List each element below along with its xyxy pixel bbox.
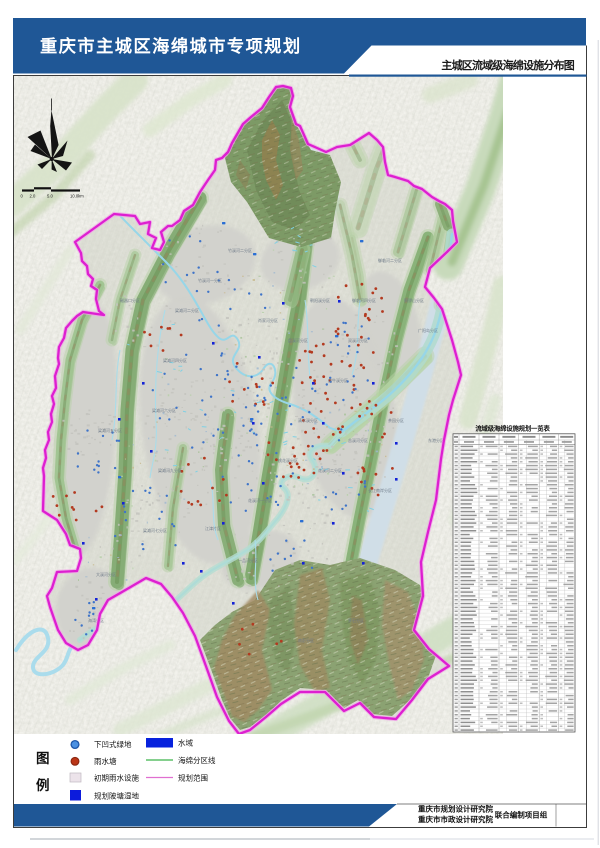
- svg-text:梁滩河六分区: 梁滩河六分区: [152, 407, 176, 413]
- svg-text:主城区流域级海绵设施分布图: 主城区流域级海绵设施分布图: [441, 58, 574, 72]
- svg-text:盘溪河分区: 盘溪河分区: [288, 337, 308, 343]
- svg-text:竹溪河一分区: 竹溪河一分区: [198, 277, 222, 283]
- svg-text:雨水塘: 雨水塘: [94, 756, 117, 766]
- svg-text:流域级海绵设施规划一览表: 流域级海绵设施规划一览表: [475, 424, 550, 433]
- svg-text:水域: 水域: [178, 738, 193, 748]
- svg-text:海绵分区线: 海绵分区线: [178, 755, 216, 765]
- svg-text:江津片区: 江津片区: [205, 525, 221, 531]
- svg-text:梁滩河五分区: 梁滩河五分区: [98, 427, 122, 433]
- svg-text:下凹式绿地: 下凹式绿地: [94, 739, 132, 749]
- svg-text:苦溪河分区: 苦溪河分区: [348, 437, 368, 443]
- svg-text:重庆市主城区海绵城市专项规划: 重庆市主城区海绵城市专项规划: [40, 36, 302, 56]
- svg-text:梁滩河九分区: 梁滩河九分区: [158, 467, 182, 473]
- svg-text:清水溪分区: 清水溪分区: [298, 417, 318, 423]
- svg-text:规划陂塘湿地: 规划陂塘湿地: [94, 791, 139, 801]
- svg-text:花溪河一分区: 花溪河一分区: [248, 497, 272, 503]
- svg-text:肖家河分区: 肖家河分区: [258, 317, 278, 323]
- svg-text:10.0km: 10.0km: [70, 194, 84, 199]
- svg-text:南彭分区: 南彭分区: [298, 637, 314, 643]
- svg-text:御临河四分区: 御临河四分区: [352, 297, 376, 303]
- svg-text:梁滩河四分区: 梁滩河四分区: [163, 357, 187, 363]
- svg-text:海湾分区: 海湾分区: [88, 617, 104, 623]
- svg-text:伏牛溪分区: 伏牛溪分区: [328, 377, 348, 383]
- svg-text:磁器口分区: 磁器口分区: [120, 297, 140, 303]
- svg-text:2.0: 2.0: [30, 194, 36, 199]
- svg-text:界石分区: 界石分区: [348, 617, 364, 623]
- svg-text:铜锣山分区: 铜锣山分区: [404, 297, 424, 303]
- svg-text:大溪河分区: 大溪河分区: [96, 571, 116, 577]
- svg-text:茶园分区: 茶园分区: [388, 417, 404, 423]
- svg-text:重庆市市政设计研究院: 重庆市市政设计研究院: [418, 814, 493, 824]
- svg-text:广阳岛分区: 广阳岛分区: [418, 327, 438, 333]
- svg-text:初期雨水设施: 初期雨水设施: [94, 773, 139, 783]
- svg-text:重庆市规划设计研究院: 重庆市规划设计研究院: [418, 804, 493, 814]
- svg-text:朝阳溪分区: 朝阳溪分区: [310, 297, 330, 303]
- svg-text:联合编制项目组: 联合编制项目组: [495, 810, 548, 820]
- svg-text:梁滩河七分区: 梁滩河七分区: [143, 527, 167, 533]
- svg-text:双溪河分区: 双溪河分区: [348, 337, 368, 343]
- svg-text:长江南岸分区: 长江南岸分区: [368, 487, 392, 493]
- svg-text:梁滩河二分区: 梁滩河二分区: [175, 307, 199, 313]
- svg-text:5.0: 5.0: [47, 194, 53, 199]
- svg-text:花溪河二分区: 花溪河二分区: [318, 467, 342, 473]
- svg-text:图: 图: [36, 751, 50, 766]
- svg-text:竹溪河二分区: 竹溪河二分区: [228, 247, 252, 253]
- svg-text:一品河分区: 一品河分区: [238, 557, 258, 563]
- svg-text:御临河二分区: 御临河二分区: [378, 257, 402, 263]
- svg-text:例: 例: [36, 777, 50, 793]
- svg-text:规划范围: 规划范围: [178, 773, 208, 783]
- svg-text:桃花溪分区: 桃花溪分区: [278, 457, 298, 463]
